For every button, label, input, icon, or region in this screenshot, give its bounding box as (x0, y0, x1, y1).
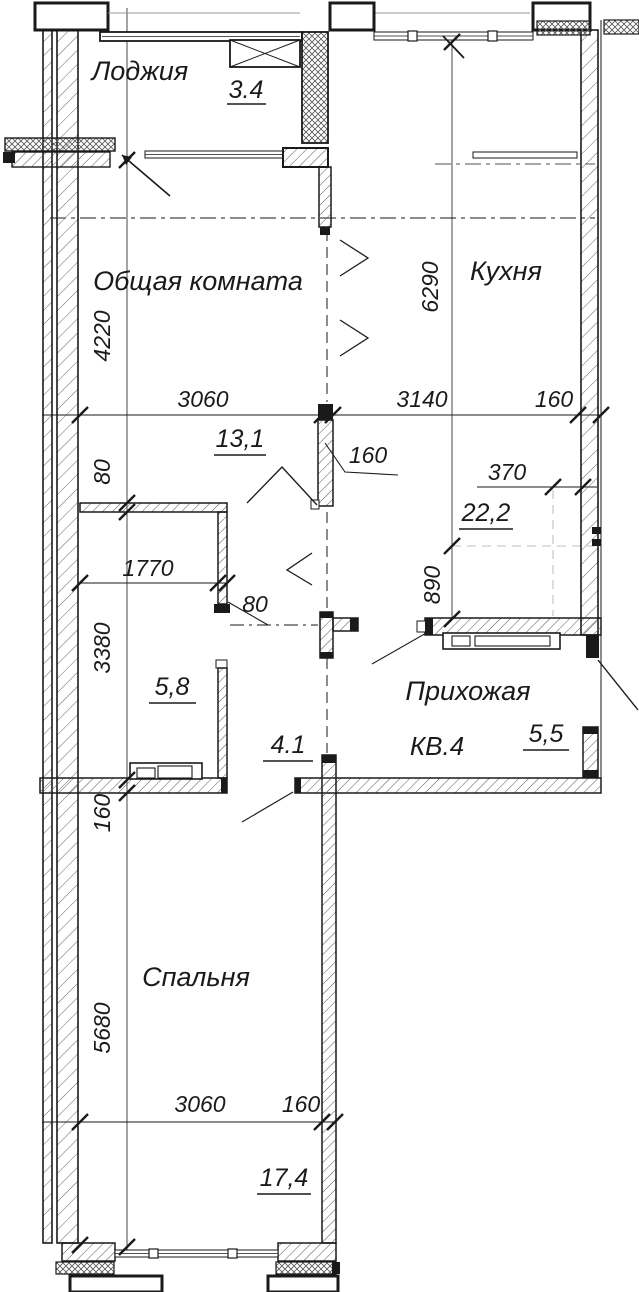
dim-6290: 6290 (417, 261, 443, 312)
room-label-kitchen: Кухня (470, 256, 542, 286)
balcony-window (145, 148, 328, 167)
vent-shaft (230, 40, 300, 67)
balcony-door-leader (122, 155, 170, 196)
area-label-hall: 5,5 (529, 720, 564, 748)
dim-160-top: 160 (535, 386, 574, 412)
area-label-kitchen: 22,2 (461, 499, 511, 527)
dim-4220: 4220 (89, 310, 115, 361)
dim-160-bed: 160 (89, 794, 115, 833)
dim-5680: 5680 (89, 1002, 115, 1053)
floor-plan-page: Лоджия 3.4 Общая комната 4220 3060 3140 … (0, 0, 639, 1292)
room-label-hall: Прихожая (405, 676, 530, 706)
area-label-loggia: 3.4 (229, 76, 264, 104)
area-label-corridor: 4.1 (271, 731, 306, 759)
room-label-living: Общая комната (93, 266, 303, 296)
sink-fixture (130, 763, 202, 779)
dim-1770: 1770 (122, 555, 173, 581)
radiator (473, 152, 577, 158)
dim-3380: 3380 (89, 622, 115, 673)
bedroom-door-leader (242, 792, 293, 822)
dim-890: 890 (419, 566, 445, 605)
dim-160-wall: 160 (349, 442, 388, 468)
fixtures (130, 633, 560, 779)
entrance-door-swing (598, 660, 638, 710)
dim-160-bot: 160 (282, 1091, 321, 1117)
kitchen-door-leader (372, 632, 428, 664)
bedroom-window (115, 1249, 278, 1258)
dim-80-leader: 80 (242, 591, 268, 617)
dim-3140: 3140 (396, 386, 447, 412)
dim-3060-top: 3060 (177, 386, 228, 412)
loggia-structure (3, 3, 530, 167)
hall-cabinet (443, 633, 560, 649)
area-label-bedroom: 17,4 (260, 1164, 309, 1192)
neighbor-parapet-topleft (35, 3, 108, 30)
bedroom-bottom-wall (56, 1243, 340, 1292)
apartment-label: КВ.4 (410, 731, 464, 761)
dim-3060-bot: 3060 (174, 1091, 225, 1117)
dim-370: 370 (488, 459, 527, 485)
room-label-bedroom: Спальня (142, 962, 250, 992)
dim-80-top: 80 (89, 459, 115, 485)
area-label-living: 13,1 (216, 425, 265, 453)
room-label-loggia: Лоджия (90, 56, 188, 86)
area-label-closet: 5,8 (155, 673, 190, 701)
floor-plan-drawing: Лоджия 3.4 Общая комната 4220 3060 3140 … (0, 0, 639, 1292)
